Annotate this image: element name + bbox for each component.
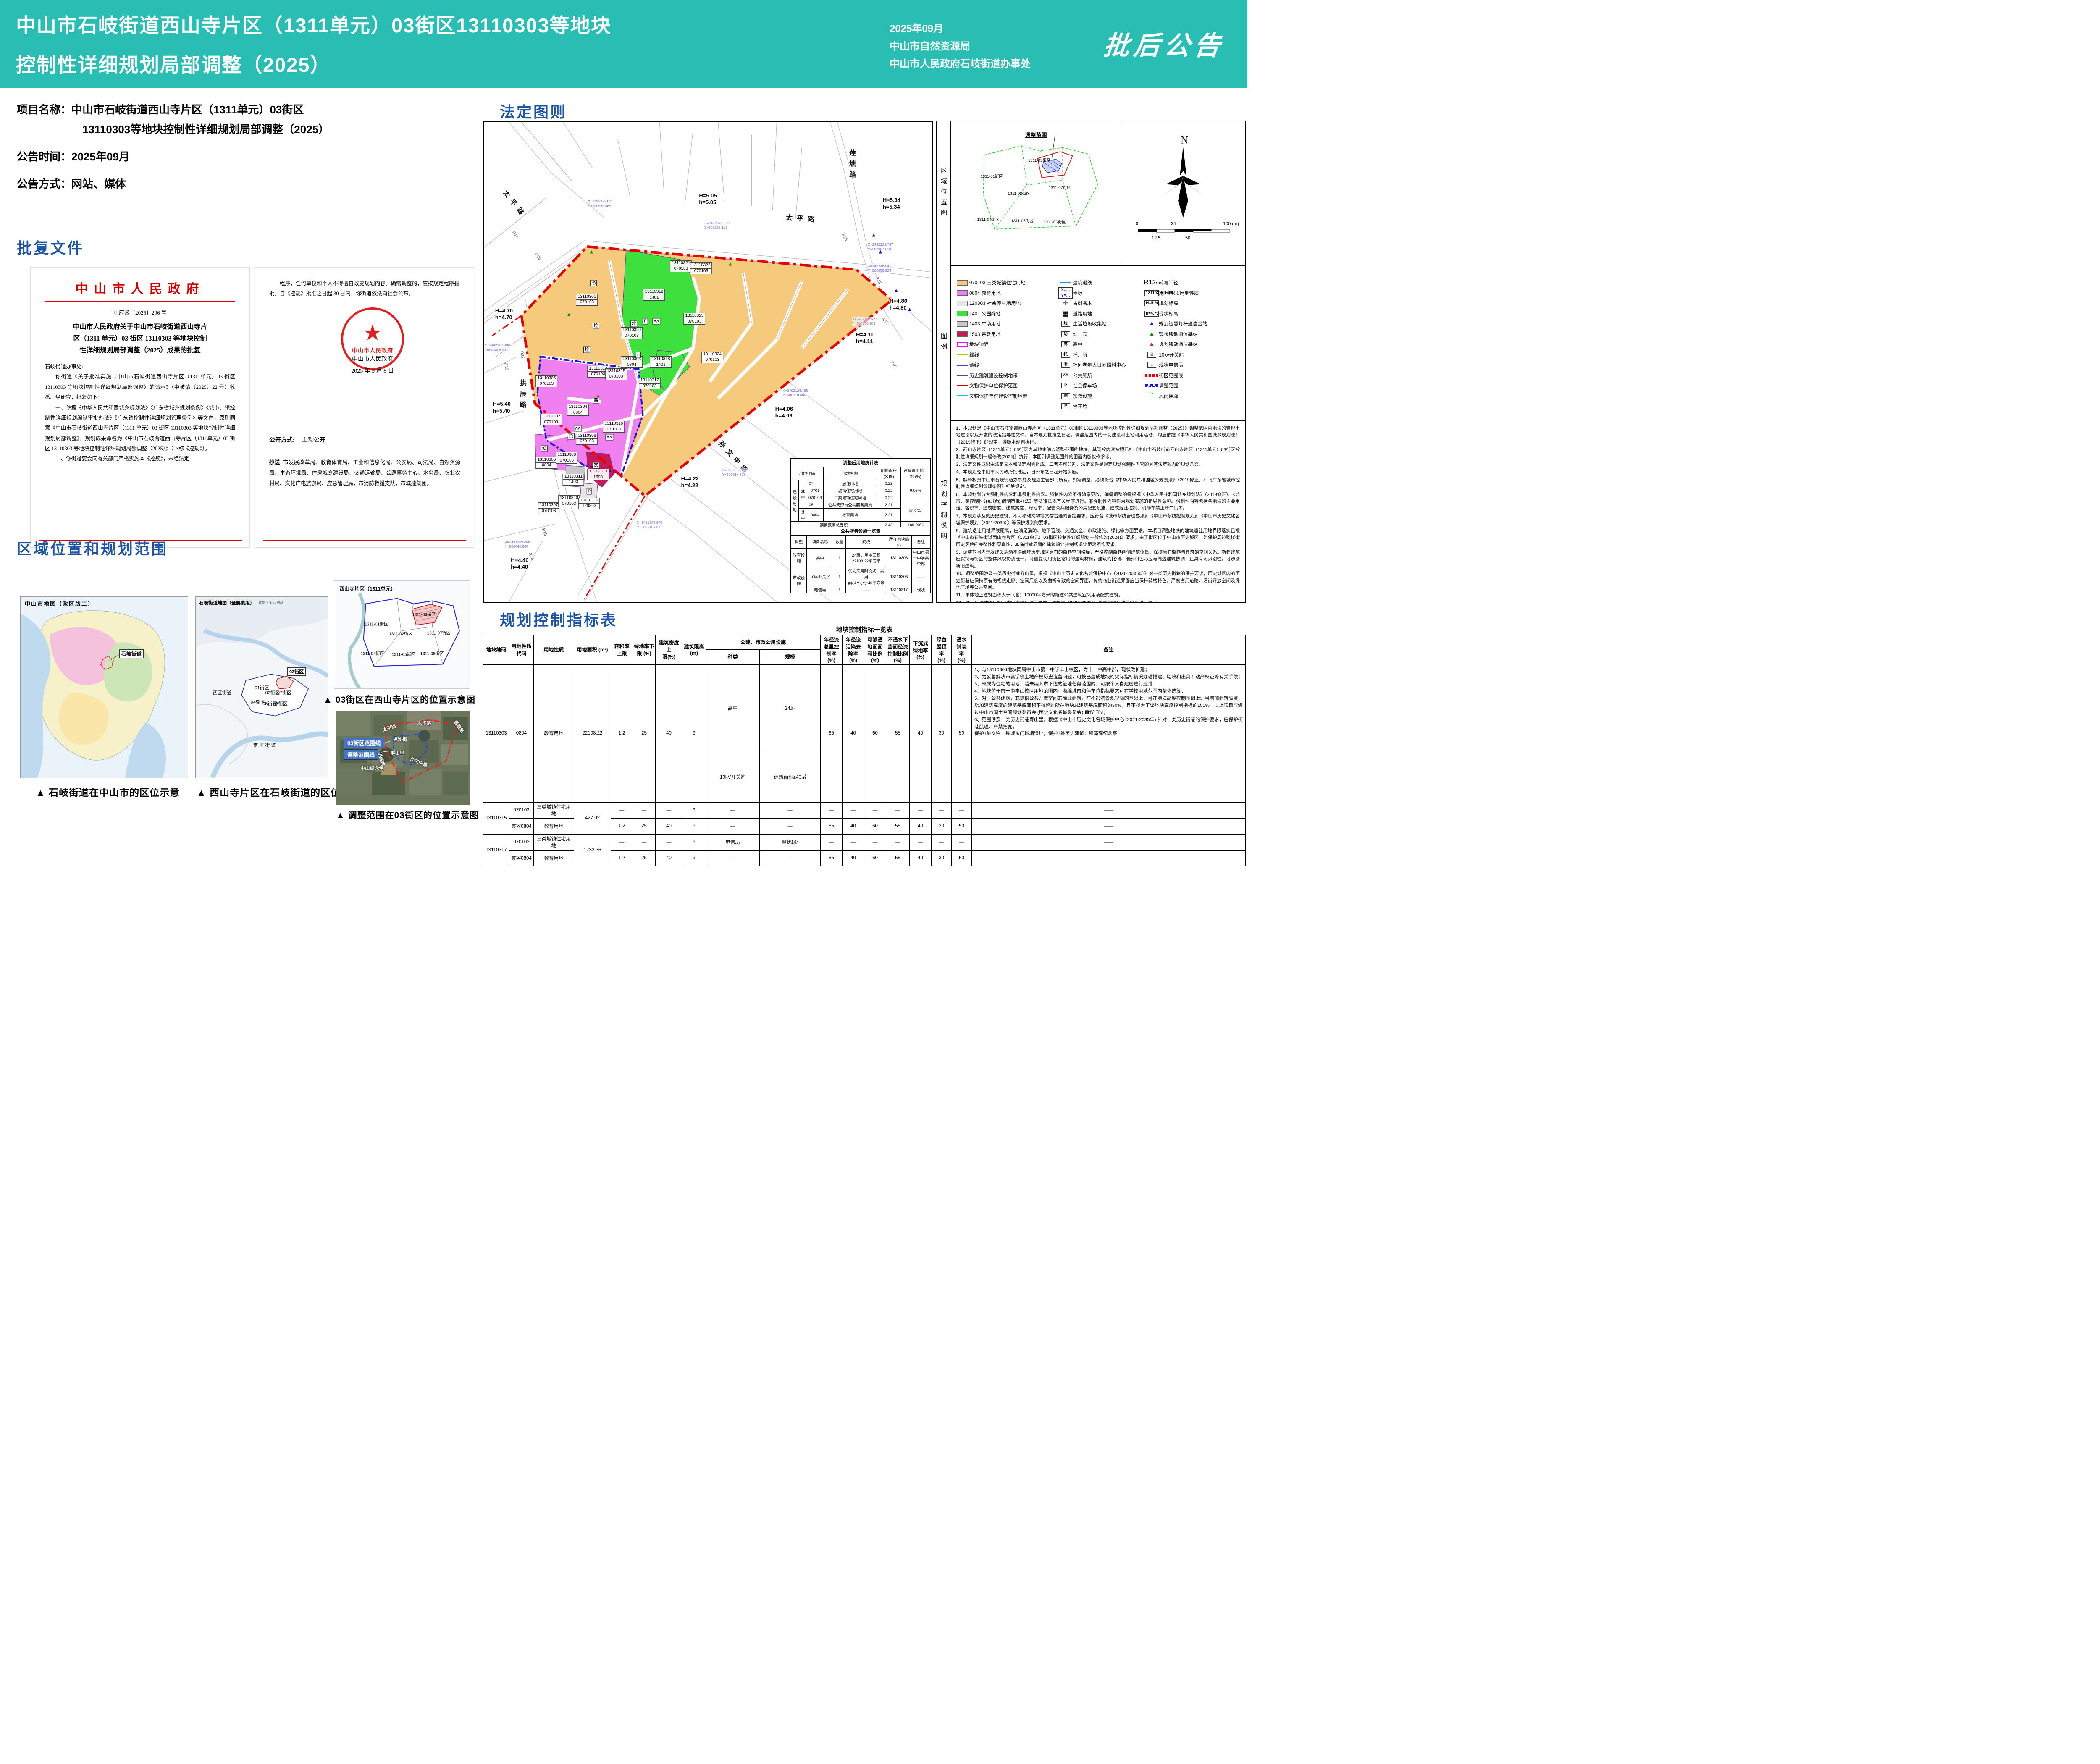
station-triangle-icon: ▲	[871, 232, 877, 238]
project-info: 项目名称：中山市石岐街道西山寺片区（1311单元）03街区 13110303等地…	[17, 100, 479, 194]
legend-glyph-icon: 宗	[1061, 393, 1070, 399]
coordinate-x: X=2491952.970	[637, 520, 662, 525]
elevation-plan: H=4.80	[890, 298, 907, 304]
legend-glyph-icon: ▲	[1149, 320, 1155, 328]
planning-note-item: 12、项目新建建筑应按《中山市绿色建筑发展专项规划（2022-2035）》要求的…	[956, 600, 1240, 602]
legend-item-label: 宗教设施	[1073, 393, 1092, 399]
it-fac-scale: 现状1处	[760, 834, 821, 850]
map3-district-label: 1311-03街区	[412, 611, 436, 617]
stats-qz: 其中	[799, 487, 807, 501]
legend-item-label: 地块边界	[969, 341, 989, 348]
page-title-line2: 控制性详细规划局部调整（2025）	[16, 49, 331, 78]
sidebar-legend-label: 图例	[939, 333, 948, 354]
parcel-label: 13110316 070103	[603, 421, 625, 433]
legend-item: 0804 教育用地	[955, 288, 1058, 299]
it-use: 教育用地	[534, 664, 574, 802]
legend-swatch-icon	[957, 301, 968, 306]
legend-item-label: 规划移动通信基站	[1159, 341, 1197, 348]
fac-h: 所在地块编码	[887, 535, 911, 549]
parcel-label: 13110315 070103	[605, 368, 627, 380]
map2-03-tag: 03街区	[287, 667, 306, 676]
map3-district-label: 1311-02街区	[389, 630, 412, 637]
legend-item-label: 1503 宗教用地	[969, 331, 1001, 338]
it-fac-scale: —	[760, 802, 821, 818]
it-fac-type: —	[706, 818, 760, 834]
fac-h: 备注	[911, 535, 930, 549]
it-imperv: —	[886, 834, 910, 850]
it-imperv: 55	[886, 664, 910, 802]
fac-cell: 电信局	[807, 586, 833, 593]
doc-paragraph: 二、你街道要会同有关部门严格实施本《控规》，未经法定	[45, 454, 235, 464]
elevation-existing: h=4.80	[890, 304, 907, 311]
approval-doc-page2: 程序，任何单位和个人不得擅自改变规划内容。确需调整的，应按规定程序报批。自《控规…	[255, 267, 474, 548]
stats-cell: 2.21	[877, 501, 901, 509]
indicator-table: 地块编码 用地性质 代码 用地性质 用地面积 (m²) 容积率 上限 绿地率下 …	[483, 635, 1246, 866]
legend-item-label: 文物保护单位保护范围	[969, 382, 1018, 389]
parcel-label: 13110319 1401	[643, 289, 665, 301]
legend-item-label: 高中	[1073, 341, 1082, 348]
it-h: 可渗透 地面面 积比例 (%)	[864, 635, 886, 665]
it-height: 9	[682, 664, 706, 802]
map2-title: 石岐街道地图（全要素版）	[199, 599, 255, 606]
it-fac-type: —	[706, 802, 760, 818]
map-zhongshan-city-graphic	[21, 597, 188, 778]
map4-tag-adjust-line: 调整范围线	[344, 749, 378, 760]
station-triangle-icon: ▲	[566, 311, 572, 317]
facility-symbol: 垃	[583, 347, 590, 353]
it-fac-type: 电信局	[706, 834, 760, 850]
parcel-use-code: 070103	[556, 458, 577, 464]
elevation-plan: H=4.40	[511, 556, 528, 563]
legend-glyph-icon: 垃	[1061, 321, 1070, 327]
parcel-use-code: 0804	[536, 463, 557, 468]
location-mini-map: 调整范围 1311-01街区1311-02街区1311-03街区1311-07街…	[951, 121, 1121, 265]
planning-note-item: 11、单体地上建筑面积大于（含）10000平方米的新建公共建筑宜采用装配式建筑。	[956, 592, 1240, 598]
legend-glyph-icon: ▲	[1149, 331, 1155, 338]
parcel-use-code: 070103	[536, 381, 557, 387]
parcel-label: 13110306 0804	[536, 457, 558, 469]
doc-page2-paragraph: 程序，任何单位和个人不得擅自改变规划内容。确需调整的，应按规定程序报批。自《控规…	[269, 278, 459, 299]
it-density: 40	[656, 818, 682, 834]
doc-ref-number: 中府函〔2025〕206 号	[45, 308, 235, 316]
it-sunken: 40	[910, 850, 932, 866]
elevation-plan: H=4.70	[495, 307, 513, 314]
parcel-code: 13110309	[577, 433, 598, 439]
coordinate-x: X=2492196.465	[852, 317, 877, 321]
elevation-existing: h=5.05	[699, 199, 717, 206]
legend-item-label: 070103 三类城镇住宅用地	[969, 279, 1026, 286]
planning-note-item: 2、西山寺片区（1311单元）03街区内其他未纳入调整范围的地块，其管控内容按照…	[956, 446, 1240, 460]
project-name-line1: 项目名称：中山市石岐街道西山寺片区（1311单元）03街区	[17, 100, 479, 120]
fac-cell: 13110303	[887, 549, 911, 567]
map3-district-label: 1311-07街区	[427, 629, 451, 635]
it-perm: 60	[864, 850, 886, 866]
parcel-label: 13110305 070103	[536, 375, 558, 387]
location-map-section: 调整范围 1311-01街区1311-02街区1311-03街区1311-07街…	[951, 121, 1245, 265]
legend-swatch-icon	[957, 311, 968, 316]
coordinate-label: X=2492124.485 Y=500718.605	[782, 388, 808, 398]
it-far: 1.2	[611, 664, 633, 802]
parcel-label: 13110308 070103	[556, 452, 578, 464]
it-roof: —	[932, 834, 952, 850]
legend-item: ᛉ 风雨连廊	[1144, 391, 1242, 402]
sidebar-legend: 图例	[937, 265, 951, 421]
legend-item-label: 历史建筑建设控制地带	[969, 372, 1018, 379]
station-triangle-icon: ▲	[893, 287, 899, 293]
legend-item-label: 现状移动通信基站	[1159, 331, 1197, 338]
it-h: 年径流 总量控 制率 (%)	[821, 635, 843, 665]
stats-h-area: 用地面积 (公顷)	[877, 467, 901, 480]
legend-glyph-icon: R12⌐	[1144, 279, 1160, 286]
map4-road-label: 扒沙街	[393, 736, 407, 743]
it-density: —	[656, 834, 682, 850]
it-far: —	[611, 834, 633, 850]
legend-item-label: 社区老年人日间照料中心	[1073, 362, 1126, 368]
map4-road-label: 太平路	[417, 719, 431, 727]
seal-org-text: 中山市人民政府	[343, 346, 402, 354]
it-sunken: 40	[910, 818, 932, 834]
legend-item-label: 风雨连廊	[1159, 393, 1178, 399]
legend-item: 13110317|1401 用地代码/用地性质	[1144, 288, 1242, 299]
it-h: 建筑限高 (m)	[682, 635, 706, 665]
map4-tag-block-line: 03街区范围线	[344, 738, 384, 748]
legend-glyph-icon: ᛉ	[1150, 392, 1154, 400]
parcel-use-code: 070103	[684, 319, 705, 325]
elevation-existing: h=5.40	[493, 407, 511, 414]
legend-item: X=… Y=… 坐标	[1058, 288, 1144, 299]
scale-12-5: 12.5	[1152, 236, 1160, 241]
coordinate-y: Y=500718.605	[782, 393, 808, 398]
fac-cell: 1	[833, 567, 846, 586]
facility-symbol: P	[643, 318, 648, 324]
parcel-code: 13110320	[621, 328, 642, 333]
parcel-code: 13110304	[567, 404, 588, 410]
planning-note-item: 4、本规划经中山市人民政府批准后，自公布之日起开始实施。	[956, 469, 1240, 475]
it-fac-scale: —	[760, 850, 821, 866]
map1-shiqi-tag: 石岐街道	[119, 649, 144, 658]
facility-symbol: ⌂	[636, 352, 641, 358]
legend-swatch-icon	[957, 375, 968, 376]
legend-item: 托 托儿所	[1058, 350, 1144, 360]
legend-swatch-icon	[957, 280, 968, 286]
legend-item: 文物保护单位保护范围	[955, 381, 1058, 391]
legend-glyph-icon: X=… Y=…	[1058, 287, 1073, 299]
facility-symbol: 托	[568, 433, 575, 440]
land-use-stats-table: 调整后用地统计表 用地代码 用地名称 用地面积 (公顷) 占建设用地比 例 (%…	[790, 458, 931, 529]
parcel-code: 13110321	[671, 261, 692, 267]
legend-item: R12⌐ 转弯半径	[1144, 278, 1242, 288]
it-runoff: 65	[821, 664, 843, 802]
parcel-code: 13110311	[563, 474, 584, 480]
legend-item: 建筑退线	[1058, 278, 1144, 288]
header-meta: 2025年09月 中山市自然资源局 中山市人民政府石岐街道办事处	[890, 20, 1031, 73]
legend-glyph-icon: H=5.90	[1144, 300, 1159, 306]
stats-cell: 三类城镇住宅用地	[824, 494, 877, 501]
legend-item: P 社会停车场	[1058, 381, 1144, 391]
it-area: 22108.22	[574, 664, 611, 802]
it-h: 年径流 污染去 除率 (%)	[843, 635, 864, 665]
cc-list: 市发展改革局、教育体育局、工业和信息化局、公安局、司法局、自然资源局、生态环境局…	[269, 459, 460, 486]
stats-cell: 0.22	[877, 480, 901, 487]
coordinate-label: X=2492233.765 Y=500614.875	[722, 468, 747, 477]
parcel-label: 13110302 070103	[540, 414, 562, 425]
legend-item-label: 用地代码/用地性质	[1159, 290, 1199, 297]
planning-note-item: 3、法定文件成果由法定文本和法定图则组成，二者不可分割，法定文件是规定规划强制性…	[956, 461, 1240, 468]
header-banner: 中山市石岐街道西山寺片区（1311单元）03街区13110303等地块 控制性详…	[0, 0, 1247, 88]
coordinate-label: X=2492267.399 Y=500406.531	[485, 343, 510, 352]
it-pollut: 40	[843, 664, 864, 802]
it-runoff: —	[821, 802, 843, 818]
coordinate-label: X=2492368.471 Y=500858.925	[868, 264, 893, 273]
legend-glyph-icon: ⌂	[1147, 362, 1156, 368]
it-runoff: 65	[821, 818, 843, 834]
fac-cell: ——	[846, 586, 887, 593]
doc-paragraphs: 你街道《关于批准实施〈中山市石岐街道西山寺片区（1311单元）03 街区 131…	[45, 372, 235, 464]
scale-0: 0	[1136, 221, 1138, 226]
parcel-code: 13110305	[536, 376, 557, 382]
coordinate-x: X=2492368.471	[868, 264, 893, 268]
facility-symbol: ⚻⚻	[652, 318, 660, 324]
map2-label: 06街区	[273, 700, 287, 707]
north-letter: N	[1181, 134, 1189, 146]
it-use: 教育用地	[534, 850, 574, 866]
elevation-plan: H=5.34	[883, 197, 900, 204]
planning-note-item: 5、解释权归中山市石岐街道办事处及规划主管部门所有，如需调整，必须符合《中华人民…	[956, 477, 1240, 491]
it-paving: 50	[952, 850, 972, 866]
fac-h: 规模	[846, 535, 887, 549]
it-roof: 30	[932, 850, 952, 866]
legend-item-label: 120803 社会停车场用地	[969, 300, 1021, 307]
legend-item-label: 1403 广场用地	[969, 320, 1001, 327]
it-roof: 30	[932, 818, 952, 834]
fac-h: 类型	[791, 535, 807, 549]
org-subdistrict-office: 中山市人民政府石岐街道办事处	[890, 55, 1031, 73]
it-sunken: 40	[910, 664, 932, 802]
org-natural-resources: 中山市自然资源局	[890, 38, 1031, 55]
parcel-use-code: 070103	[577, 300, 598, 305]
fac-cell: 1	[833, 549, 846, 567]
legend-glyph-icon	[1145, 384, 1158, 387]
coordinate-x: X=2492124.485	[782, 388, 808, 393]
parcel-use-code: 070103	[621, 333, 642, 339]
parcel-label: 13110323 070103	[684, 313, 706, 325]
parcel-use-code: 070103	[702, 357, 723, 363]
parcel-use-code: 1503	[588, 475, 609, 480]
plan-road-name: 拱辰路	[517, 379, 527, 412]
parcel-label: 13110313 1503	[587, 469, 609, 480]
it-remark: ——	[972, 850, 1246, 866]
facility-symbol: P	[586, 488, 592, 495]
legend-glyph-icon: 老	[1061, 362, 1070, 368]
elevation-plan: H=4.06	[775, 406, 793, 412]
legend-item: 070103 三类城镇住宅用地	[955, 278, 1058, 288]
elevation-label: H=4.22 h=4.22	[681, 475, 699, 489]
stats-cell: 教育用地	[824, 509, 877, 522]
legend-swatch-icon	[957, 365, 968, 366]
legend-item: 高 高中	[1058, 339, 1144, 350]
approval-doc-page1: 中山市人民政府 中府函〔2025〕206 号 中山市人民政府关于中山市石岐街道西…	[30, 267, 250, 548]
stats-cell: 07	[799, 480, 824, 487]
open-method-value: 主动公开	[302, 437, 325, 444]
stats-qz: 其中	[799, 509, 807, 522]
fac-cell: 中山市第 一中学高 中部	[911, 549, 930, 567]
elevation-plan: H=5.40	[493, 401, 511, 407]
map1-title: 中山市地图（政区版二）	[25, 599, 94, 607]
legend-item-label: 现状标高	[1159, 310, 1178, 317]
map3-caption: ▲ 03街区在西山寺片区的位置示意图	[323, 693, 475, 706]
it-usecode: 0804	[509, 664, 534, 802]
stats-h-ratio: 占建设用地比 例 (%)	[901, 467, 931, 480]
announce-method: 公告方式：网站、媒体	[17, 174, 479, 194]
it-density: 40	[656, 664, 682, 802]
sidebar-location: 区域位置图	[937, 121, 951, 265]
parcel-code: 13110319	[644, 289, 665, 295]
stats-cell: 0804	[807, 509, 823, 522]
legend-item: ⍓ 10kv开关站	[1144, 350, 1242, 360]
legend-item: 120803 社会停车场用地	[955, 298, 1058, 309]
coordinate-y: Y=500535.865	[588, 204, 613, 208]
legend-item-label: 建筑退线	[1073, 279, 1092, 286]
it-imperv: 55	[886, 818, 910, 834]
elevation-label: H=4.80 h=4.80	[890, 298, 907, 312]
map4-road-label: 寿山里	[391, 750, 404, 756]
location-map-adjust-tag: 调整范围	[1025, 131, 1047, 139]
it-usecode: 兼容0804	[509, 818, 534, 834]
project-name-line2: 13110303等地块控制性详细规划局部调整（2025）	[17, 120, 479, 139]
seal-signature: 中山市人民政府 2025 年 9 月 8 日	[318, 354, 427, 377]
facility-symbol: 高	[593, 397, 599, 404]
scale-100: 100 (m)	[1223, 221, 1239, 226]
it-fac-scale: 24班	[760, 664, 821, 752]
legend-swatch-icon	[957, 331, 968, 337]
stats-cell: 2.21	[877, 509, 901, 522]
map4-caption: ▲ 调整范围在03街区的位置示意图	[336, 808, 479, 821]
parcel-use-code: 070103	[639, 384, 660, 389]
location-district-label: 1311-06街区	[1043, 219, 1066, 225]
it-h: 用地面积 (m²)	[574, 635, 611, 665]
coordinate-y: Y=500858.925	[868, 268, 893, 273]
section-title-location: 区域位置和规划范围	[17, 537, 168, 559]
page-title-line1: 中山市石岐街道西山寺片区（1311单元）03街区13110303等地块	[16, 9, 612, 38]
section-title-plan: 法定图则	[500, 100, 567, 122]
facility-symbol: ⚻⚻	[605, 434, 613, 441]
seal-signature-org: 中山市人民政府	[318, 354, 427, 365]
map-block03-position: 西山寺片区（1311单元） 1311-01街区1311-02街区1311-03街…	[334, 580, 470, 689]
coordinate-x: X=2492239.787	[868, 242, 893, 247]
legend-item-label: 文物保护单位建设控制地带	[969, 393, 1027, 399]
facility-symbol: ⚻⚻	[574, 425, 582, 431]
it-pollut: —	[843, 802, 864, 818]
legend-item: 文物保护单位建设控制地带	[955, 391, 1058, 402]
it-green: 25	[633, 850, 656, 866]
coordinate-y: Y=500406.531	[485, 348, 510, 352]
legend-glyph-icon: 幼	[1061, 331, 1070, 337]
legend-item-label: 规划智慧灯杆通信基站	[1159, 320, 1207, 327]
parcel-code: 13110313	[588, 469, 609, 475]
it-use: 教育用地	[534, 818, 574, 834]
it-code: 13110303	[483, 664, 509, 802]
legend-swatch-icon	[957, 395, 968, 396]
legend-section: 070103 三类城镇住宅用地 0804 教育用地 120803 社会停车场用地…	[951, 265, 1245, 421]
stats-cell: 08	[799, 501, 824, 509]
coordinate-x: X=2492233.765	[722, 468, 747, 472]
it-runoff: 65	[821, 850, 843, 866]
it-height: 9	[682, 802, 706, 818]
it-h: 绿地率下 限 (%)	[633, 635, 656, 665]
planning-note-item: 1、本规划是《中山市石岐街道西山寺片区（1311单元）03街区13110303等…	[956, 425, 1240, 446]
legend-item-label: 托儿所	[1073, 352, 1087, 358]
fac-cell: 10kv开关房	[807, 567, 833, 586]
legend-glyph-icon: h=4.75	[1144, 311, 1159, 317]
seal-star-icon: ★	[343, 321, 402, 345]
parcel-use-code: 1401	[651, 362, 672, 368]
it-h: 地块编码	[483, 635, 509, 665]
it-remark: 1、与13110304地块同属中山市第一中学丰山校区，为市一中高中部，现状改扩建…	[972, 664, 1246, 802]
it-green: —	[633, 834, 656, 850]
parcel-code: 13110307	[538, 503, 559, 509]
it-remark: ——	[972, 834, 1246, 850]
fac-cell: 优先采用附设式，实用 面积不小于40平方米	[846, 567, 887, 586]
elevation-label: H=5.05 h=5.05	[699, 192, 717, 206]
coordinate-x: X=2491909.846	[505, 540, 530, 544]
it-h: 不透水下 垫面径流 控制比例 (%)	[886, 635, 910, 665]
it-pollut: —	[843, 834, 864, 850]
it-h: 公建、市政公用设施	[706, 635, 821, 650]
it-use: 三类城镇住宅用地	[534, 834, 574, 850]
sidebar-notes: 规划控制说明	[937, 421, 951, 602]
fac-cell: 现状	[911, 586, 930, 593]
stats-cell: 0.22	[877, 487, 901, 494]
parcel-use-code: 1401	[644, 295, 665, 301]
doc-title: 中山市人民政府关于中山市石岐街道西山寺片区（1311 单元）03 街区 1311…	[71, 321, 210, 357]
it-far: 1.2	[611, 850, 633, 866]
parcel-code: 13110316	[604, 421, 625, 427]
legend-glyph-icon	[1060, 282, 1071, 283]
location-district-label: 1311-05街区	[1011, 218, 1034, 223]
fac-cell: 24班，用地面积 22108.22平方米	[846, 549, 887, 567]
legend-column-2: 建筑退线 X=… Y=… 坐标 ✛ 古树名木 ▦ 道路用地	[1058, 278, 1144, 418]
coordinate-x: X=2492371.389	[704, 220, 730, 225]
it-h: 种类	[706, 649, 760, 664]
it-usecode: 兼容0804	[509, 850, 534, 866]
legend-item: P 停车场	[1058, 401, 1144, 412]
stats-category: 建设 用地	[791, 480, 799, 522]
map-adjustment-satellite: 03街区范围线 调整范围线 太平路太平路莲塘路扒沙街拱辰路寿山里孙文中路中山纪念…	[336, 711, 470, 805]
legend-item: 宗 宗教设施	[1058, 391, 1144, 402]
parcel-code: 13110306	[536, 457, 557, 463]
map3-title: 西山寺片区（1311单元）	[339, 585, 396, 592]
stats-cell: 0701	[807, 487, 823, 494]
legend-item: ▲ 规划智慧灯杆通信基站	[1144, 319, 1242, 329]
parcel-code: 13110301	[577, 294, 598, 300]
stats-cell: 公共管理与公共服务用地	[824, 501, 877, 509]
fac-cell: 高中	[807, 549, 833, 567]
facility-symbol: 幼	[541, 445, 548, 451]
parcel-label: 13110304 0804	[567, 404, 589, 416]
parcel-use-code: 0804	[621, 362, 642, 368]
it-imperv: 55	[886, 850, 910, 866]
elevation-label: H=4.11 h=4.11	[856, 331, 874, 345]
parcel-use-code: 070103	[559, 501, 580, 507]
it-density: 40	[656, 850, 682, 866]
section-title-approval: 批复文件	[17, 236, 84, 258]
elevation-existing: h=4.06	[775, 412, 793, 419]
stats-table-title: 调整后用地统计表	[790, 458, 931, 467]
station-triangle-icon: ▲	[589, 249, 594, 255]
it-paving: 50	[952, 818, 972, 834]
elevation-label: H=4.70 h=4.70	[495, 307, 513, 321]
sidebar-notes-label: 规划控制说明	[939, 480, 948, 543]
